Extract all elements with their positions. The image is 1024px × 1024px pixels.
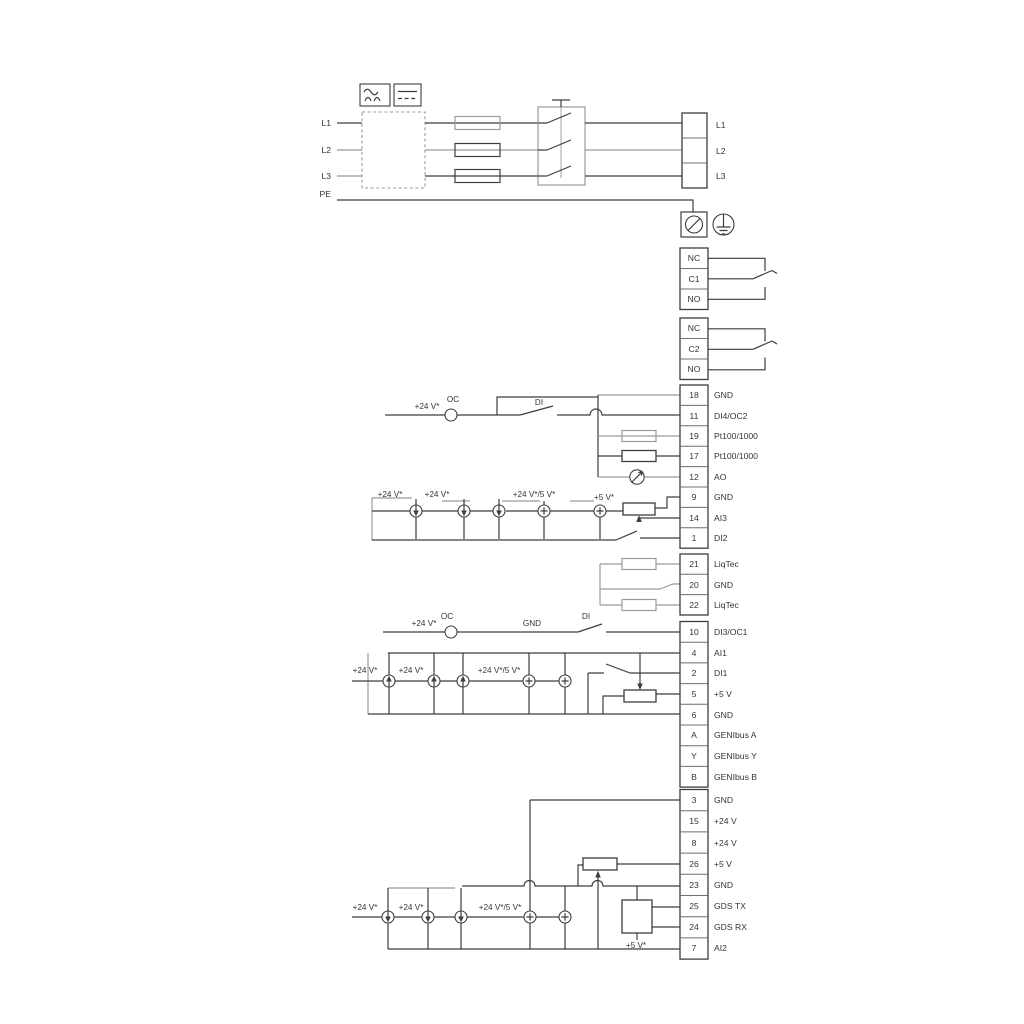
g3-v24-label: +24 V* — [412, 619, 438, 628]
phase-l1-in-label: L1 — [321, 118, 331, 128]
terminal-label: DI2 — [714, 533, 728, 543]
g1-source-shafts — [416, 499, 600, 539]
g3-potentiometer-icon — [624, 690, 656, 702]
pe-label: PE — [320, 189, 332, 199]
pot-wiper-arrow-icon — [637, 684, 643, 691]
di2-switch-blade-icon — [616, 531, 637, 540]
wire-di2 — [372, 538, 680, 540]
g4-pot-left-wire — [578, 865, 583, 886]
g1-s-v24a-label: +24 V* — [378, 490, 404, 499]
relay1-contact-wires — [708, 258, 765, 299]
terminal-label: GDS TX — [714, 901, 746, 911]
liqtec-sensor-21-icon — [622, 559, 656, 570]
terminal-label: +24 V — [714, 838, 737, 848]
io-terminal-block-1: 18GND 11DI4/OC2 19Pt100/1000 17Pt100/100… — [680, 385, 758, 548]
g1-bracket-left — [372, 498, 412, 540]
power-terminal-block — [682, 113, 707, 188]
terminal-number: 9 — [692, 492, 697, 502]
relay1-c1-label: C1 — [689, 274, 700, 284]
terminal-label: +5 V — [714, 689, 732, 699]
terminal-number: 23 — [689, 880, 699, 890]
relay2-nc-label: NC — [688, 323, 700, 333]
terminal-number: 17 — [689, 451, 699, 461]
terminal-number: 6 — [692, 710, 697, 720]
relay1-no-label: NO — [688, 294, 701, 304]
terminal-label: AO — [714, 472, 727, 482]
liqtec-circuit — [600, 559, 680, 611]
di4-switch-blade-icon — [520, 406, 553, 415]
terminal-label: AI2 — [714, 943, 727, 953]
g1-s-v245-label: +24 V*/5 V* — [513, 490, 556, 499]
terminal-number: 15 — [689, 816, 699, 826]
relay1-nc-label: NC — [688, 253, 700, 263]
g3-s-v245-label: +24 V*/5 V* — [478, 666, 521, 675]
g1-oc-label: OC — [447, 395, 459, 404]
g3-gnd-label: GND — [523, 619, 541, 628]
liqtec-wires — [600, 564, 680, 605]
phase-l1-out-label: L1 — [716, 120, 726, 130]
terminal-number: 19 — [689, 431, 699, 441]
emc-filter-box — [362, 112, 425, 188]
terminal-label: GND — [714, 795, 733, 805]
wire-gnd23 — [462, 881, 680, 887]
terminal-label: Pt100/1000 — [714, 451, 758, 461]
terminal-number: 11 — [690, 411, 699, 421]
g4-potentiometer-icon — [583, 858, 617, 870]
terminal-label: DI4/OC2 — [714, 411, 748, 421]
g3-oc-label: OC — [441, 612, 453, 621]
g3-di-label: DI — [582, 612, 590, 621]
terminal-number: B — [691, 772, 697, 782]
io-group3-circuit: +24 V* OC GND DI +24 V* +24 V* +24 V*/5 … — [352, 612, 680, 714]
g3-s-v24b-label: +24 V* — [399, 666, 425, 675]
terminal-number: Y — [691, 751, 697, 761]
terminal-label: GENIbus A — [714, 730, 757, 740]
relay2-c2-label: C2 — [689, 344, 700, 354]
terminal-label: GENIbus Y — [714, 751, 757, 761]
phase-l3-in-label: L3 — [321, 171, 331, 181]
relay2-contact-wires — [708, 329, 765, 370]
terminal-label: AI1 — [714, 648, 727, 658]
g1-potentiometer-icon — [623, 503, 655, 515]
terminal-label: GND — [714, 492, 733, 502]
di4-di-label: DI — [535, 398, 543, 407]
terminal-label: GDS RX — [714, 922, 747, 932]
mains-input-section: L1 L2 L3 PE L1 — [320, 84, 734, 237]
g1-oc-output-icon — [445, 409, 457, 421]
terminal-label: AI3 — [714, 513, 727, 523]
io-terminal-block-2: 21LiqTec 20GND 22LiqTec — [680, 554, 740, 615]
g1-v24-label: +24 V* — [415, 402, 441, 411]
di1-switch-blade-icon — [606, 664, 630, 673]
liqtec-sensor-22-icon — [622, 600, 656, 611]
switch-blade-l3-icon — [538, 166, 571, 176]
terminal-label: GND — [714, 390, 733, 400]
terminal-number: 8 — [692, 838, 697, 848]
terminal-number: 12 — [689, 472, 699, 482]
g1-s-v5-label: +5 V* — [594, 493, 615, 502]
terminal-number: 22 — [689, 600, 699, 610]
g3-oc-output-icon — [445, 626, 457, 638]
relay1-section: NC C1 NO — [680, 248, 777, 310]
di4-bracket — [497, 397, 598, 415]
g3-pot-left-wire — [603, 696, 624, 714]
terminal-number: 14 — [689, 513, 699, 523]
g3-s-v24a-label: +24 V* — [353, 666, 379, 675]
terminal-number: 21 — [689, 559, 699, 569]
terminal-label: GENIbus B — [714, 772, 757, 782]
relay2-no-label: NO — [688, 364, 701, 374]
terminal-number: 2 — [692, 668, 697, 678]
relay1-contact-blade-icon — [753, 271, 777, 279]
terminal-number: 10 — [689, 627, 699, 637]
terminal-label: +5 V — [714, 859, 732, 869]
g1-s-v24b-label: +24 V* — [425, 490, 451, 499]
terminal-label: +24 V — [714, 816, 737, 826]
io-group1-circuit: DI +24 V* OC +24 V* +24 V* +24 V*/5 V* +… — [372, 395, 680, 540]
terminal-number: 7 — [692, 943, 697, 953]
switch-blade-l2-icon — [538, 140, 571, 150]
wire-pe — [337, 200, 693, 212]
g4-s-v24a-label: +24 V* — [353, 903, 379, 912]
terminal-number: 3 — [692, 795, 697, 805]
terminal-label: LiqTec — [714, 600, 740, 610]
terminal-label: DI1 — [714, 668, 728, 678]
wiring-diagram: L1 L2 L3 PE L1 — [0, 0, 1024, 1024]
g3-source-shafts — [389, 653, 565, 714]
main-switch-handle-icon — [552, 100, 570, 107]
switch-blade-l1-icon — [538, 113, 571, 123]
relay2-section: NC C2 NO — [680, 318, 777, 380]
terminal-number: 18 — [689, 390, 699, 400]
gds-sensor-box — [622, 900, 652, 933]
terminal-label: GND — [714, 580, 733, 590]
phase-l3-out-label: L3 — [716, 171, 726, 181]
terminal-number: 25 — [689, 901, 699, 911]
terminal-number: 5 — [692, 689, 697, 699]
wire-gnd9 — [655, 497, 680, 508]
di3-switch-blade-icon — [578, 624, 602, 632]
terminal-number: 24 — [689, 922, 699, 932]
main-switch-box — [538, 107, 585, 185]
io-group4-circuit: +5 V* +24 V* +24 V* +24 V*/5 V* — [352, 800, 680, 950]
dc-symbol-box — [394, 84, 421, 106]
io-terminal-block-3: 10DI3/OC1 4AI1 2DI1 5+5 V 6GND AGENIbus … — [680, 622, 757, 788]
pt100-sensor-17-icon — [622, 451, 656, 462]
wiring-diagram-page: L1 L2 L3 PE L1 — [0, 0, 1024, 1024]
phase-l2-in-label: L2 — [321, 145, 331, 155]
terminal-label: GND — [714, 710, 733, 720]
phase-l2-out-label: L2 — [716, 146, 726, 156]
terminal-number: 4 — [692, 648, 697, 658]
terminal-number: A — [691, 730, 697, 740]
io-terminal-block-4: 3GND 15+24 V 8+24 V 26+5 V 23GND 25GDS T… — [680, 790, 747, 960]
relay2-contact-blade-icon — [753, 341, 777, 349]
terminal-number: 20 — [689, 580, 699, 590]
terminal-label: LiqTec — [714, 559, 740, 569]
pot-wiper-arrow-icon — [595, 871, 601, 878]
terminal-number: 1 — [692, 533, 697, 543]
g4-s-v24b-label: +24 V* — [399, 903, 425, 912]
g4-s-v245-label: +24 V*/5 V* — [479, 903, 522, 912]
terminal-label: DI3/OC1 — [714, 627, 748, 637]
terminal-label: Pt100/1000 — [714, 431, 758, 441]
terminal-label: GND — [714, 880, 733, 890]
terminal-number: 26 — [689, 859, 699, 869]
